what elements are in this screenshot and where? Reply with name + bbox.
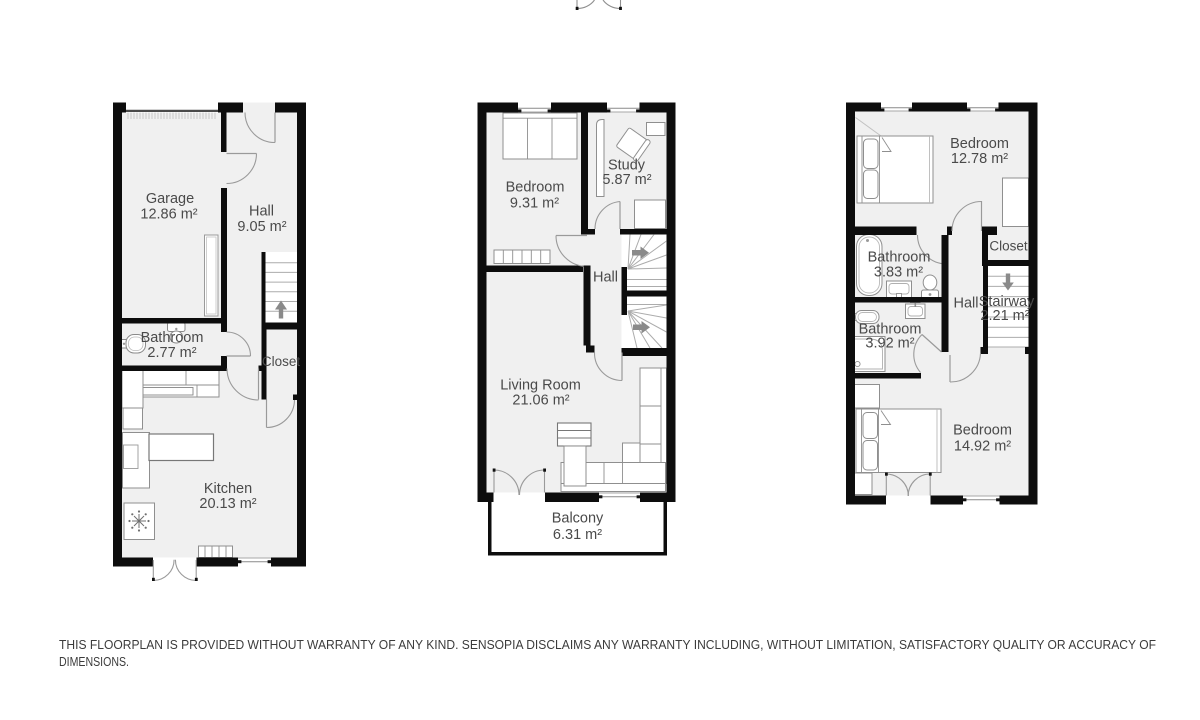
svg-text:Bedroom: Bedroom [953,423,1012,439]
svg-text:14.92 m²: 14.92 m² [954,439,1011,455]
svg-text:6.31 m²: 6.31 m² [553,527,602,543]
svg-text:Kitchen: Kitchen [204,481,252,497]
svg-text:5.87 m²: 5.87 m² [602,172,651,188]
svg-text:12.86 m²: 12.86 m² [140,207,197,223]
svg-text:3.92 m²: 3.92 m² [865,336,914,352]
svg-text:20.13 m²: 20.13 m² [199,496,256,512]
svg-text:Hall: Hall [249,204,274,220]
svg-text:9.05 m²: 9.05 m² [237,219,286,235]
svg-text:3.83 m²: 3.83 m² [874,265,923,281]
svg-text:DIMENSIONS.: DIMENSIONS. [59,654,129,669]
svg-text:2.21 m²: 2.21 m² [980,308,1029,324]
svg-text:Closet: Closet [989,239,1028,254]
svg-text:THIS FLOORPLAN IS PROVIDED WIT: THIS FLOORPLAN IS PROVIDED WITHOUT WARRA… [59,637,1156,652]
svg-text:12.78 m²: 12.78 m² [951,151,1008,167]
svg-text:2.77 m²: 2.77 m² [147,345,196,361]
svg-text:Garage: Garage [146,191,194,207]
svg-text:Closet: Closet [262,354,301,369]
svg-text:21.06 m²: 21.06 m² [512,393,569,409]
svg-text:9.31 m²: 9.31 m² [510,196,559,212]
svg-text:Living Room: Living Room [500,378,581,394]
svg-text:Bedroom: Bedroom [506,180,565,196]
svg-text:Bathroom: Bathroom [868,250,931,266]
svg-text:Bathroom: Bathroom [141,330,204,346]
svg-text:Hall: Hall [954,296,979,312]
svg-text:Bedroom: Bedroom [950,136,1009,152]
svg-text:Hall: Hall [593,270,618,286]
svg-text:Balcony: Balcony [552,511,604,527]
